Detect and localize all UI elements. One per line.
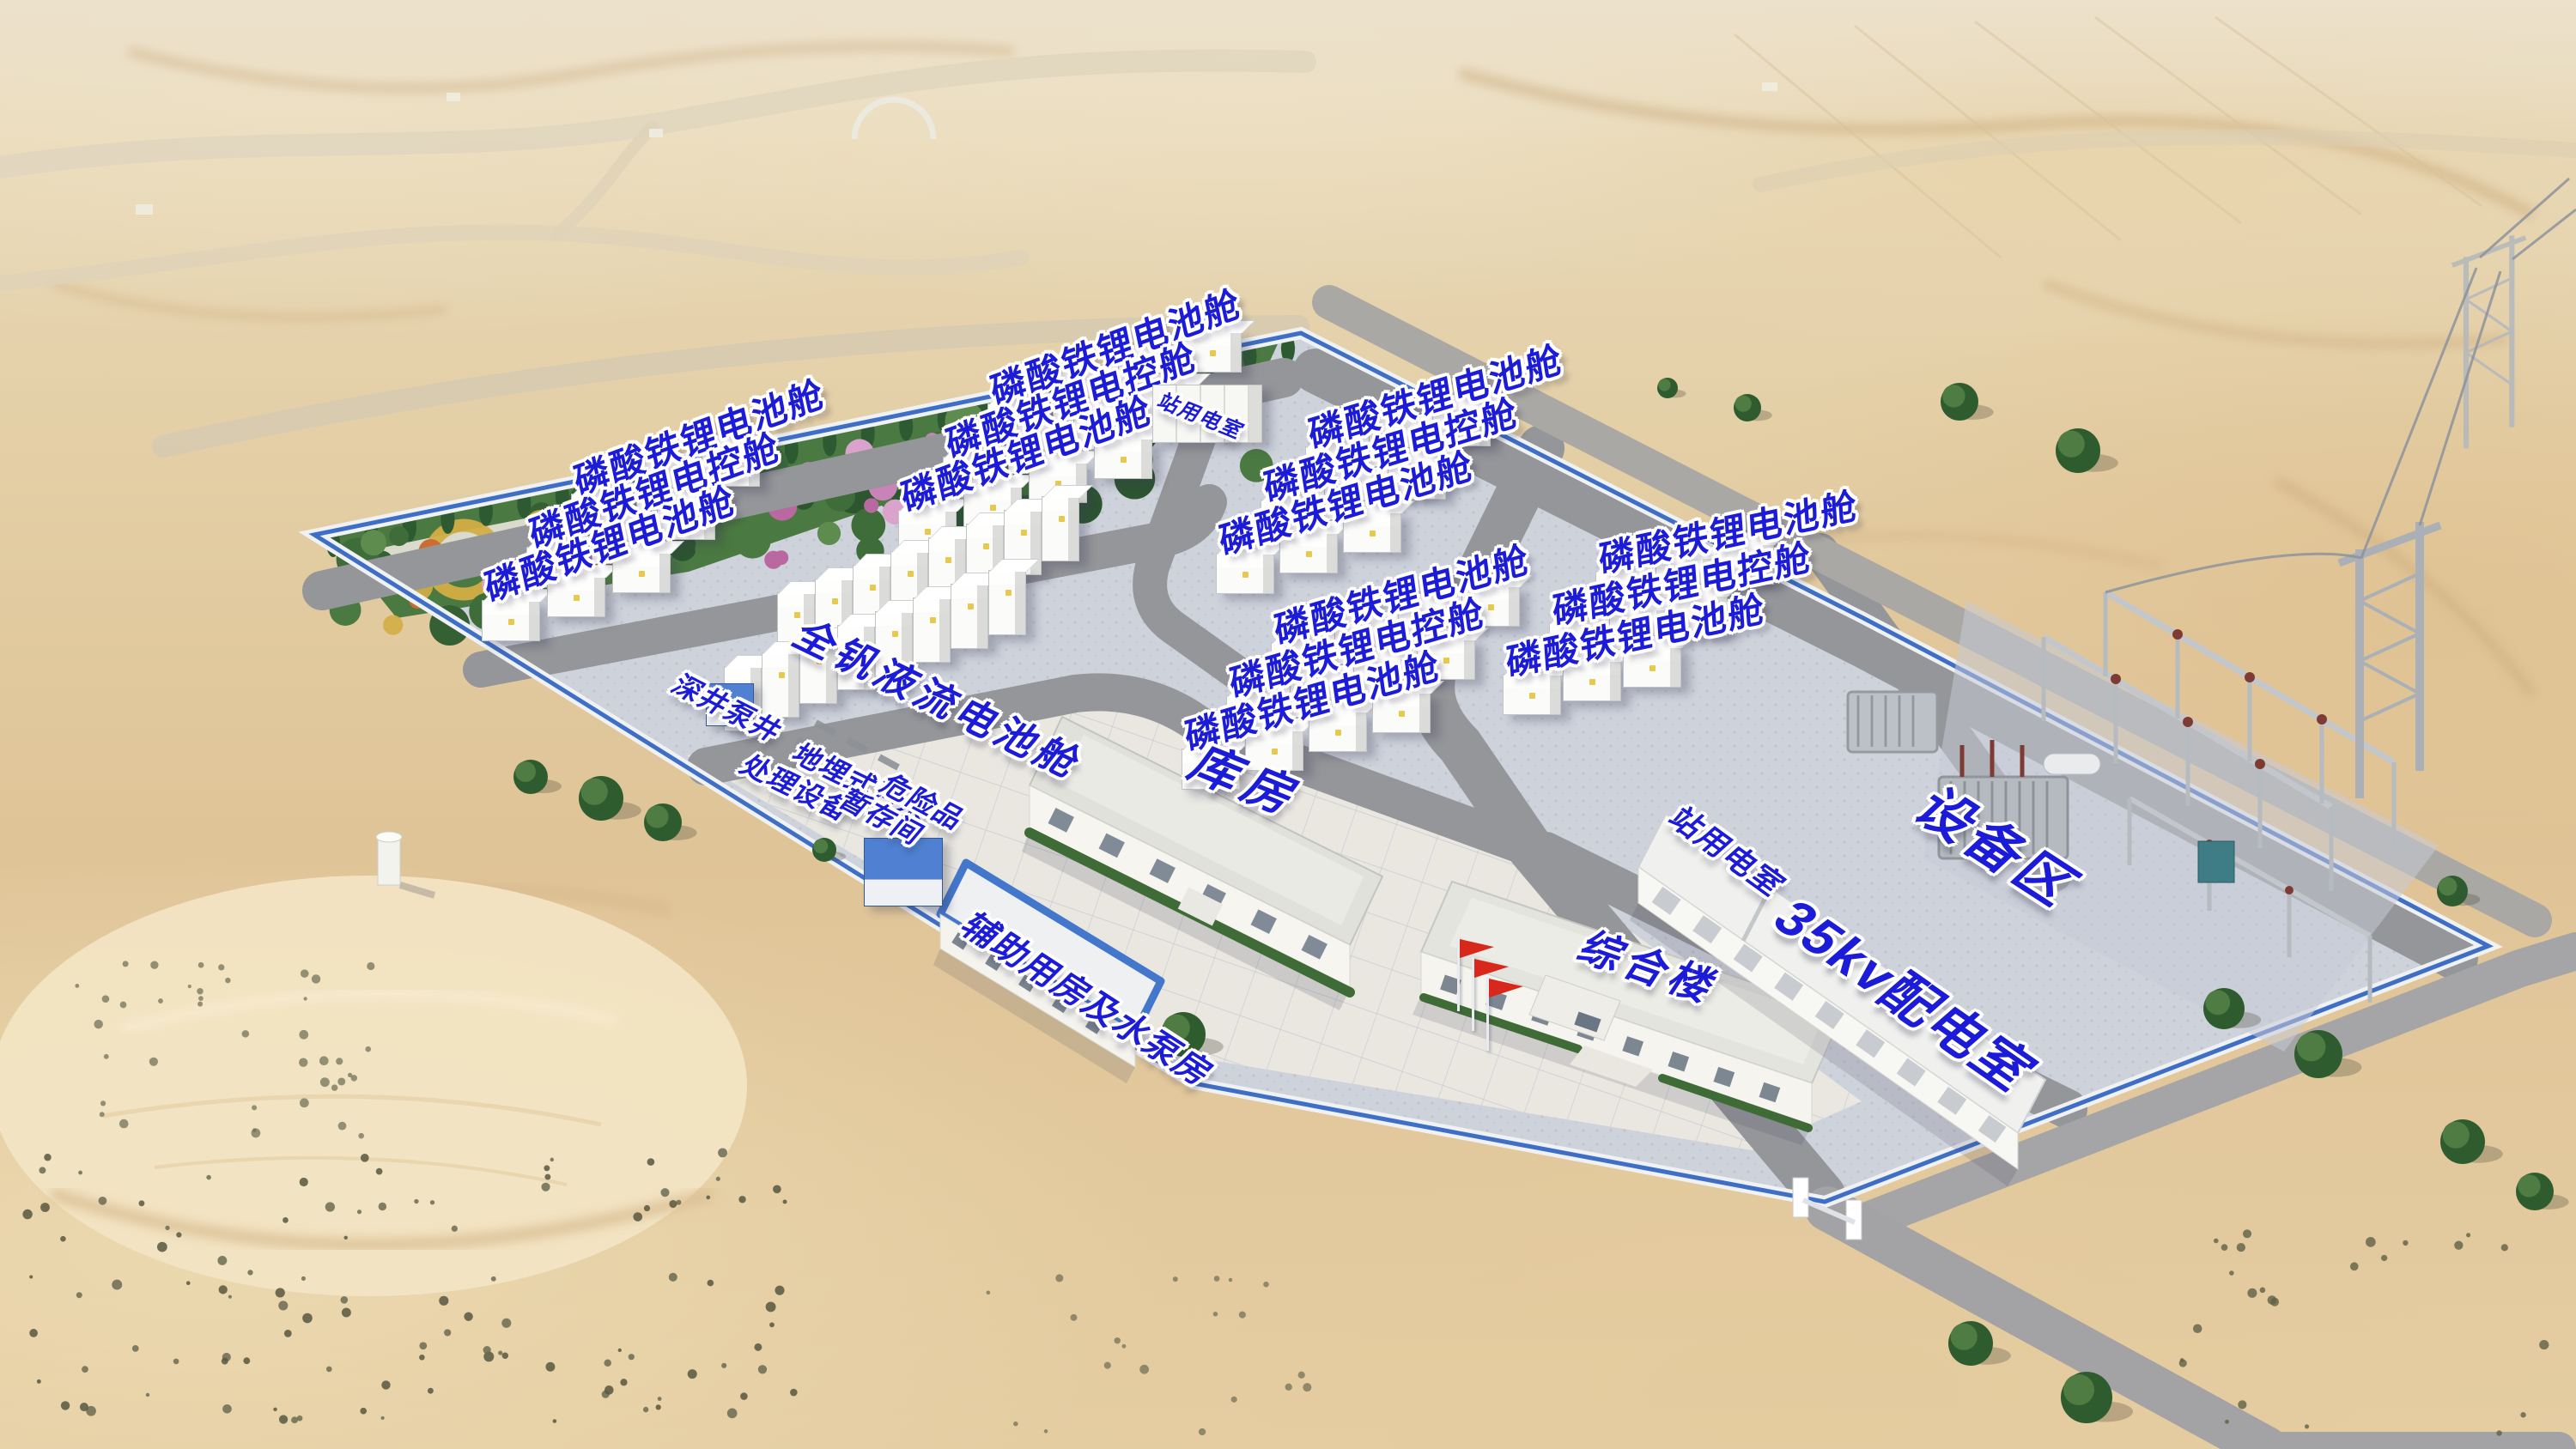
battery-container-blocks: 磷酸铁锂电池舱磷酸铁锂电控舱磷酸铁锂电池舱磷酸铁锂电池舱磷酸铁锂电控舱磷酸铁锂电…: [0, 0, 2576, 1449]
flow-container-cabin: [988, 570, 1026, 635]
flow-container-cabin: [951, 584, 988, 649]
flow-container-cabin: [913, 597, 951, 663]
flow-container-cabin: [1042, 496, 1079, 561]
aerial-site-rendering: 磷酸铁锂电池舱磷酸铁锂电控舱磷酸铁锂电池舱磷酸铁锂电池舱磷酸铁锂电控舱磷酸铁锂电…: [0, 0, 2576, 1449]
